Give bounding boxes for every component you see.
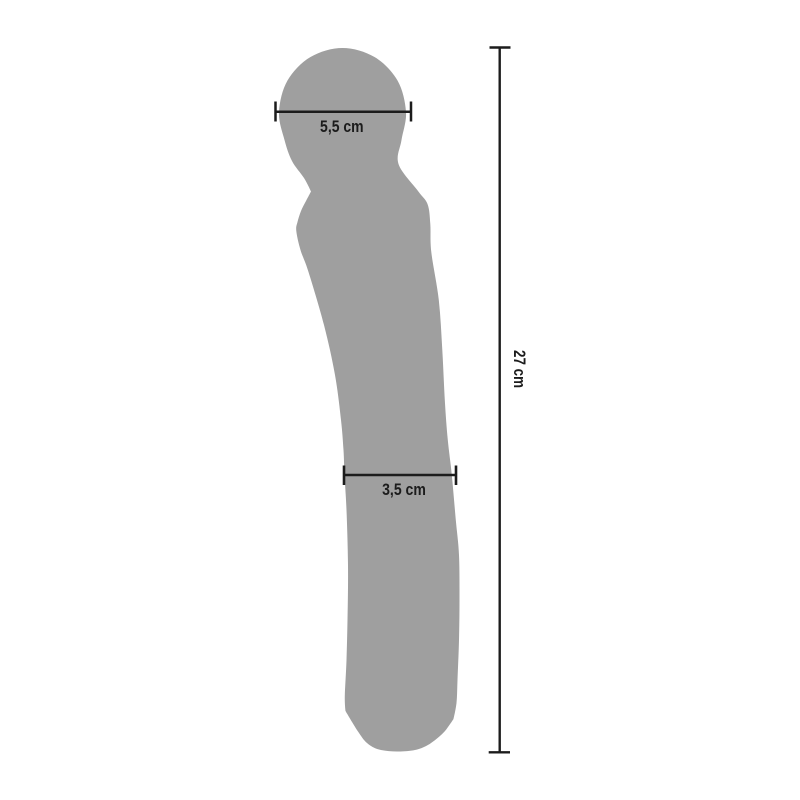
svg-text:27 cm: 27 cm (510, 350, 528, 388)
svg-text:3,5 cm: 3,5 cm (382, 481, 426, 499)
svg-text:5,5 cm: 5,5 cm (320, 118, 364, 136)
